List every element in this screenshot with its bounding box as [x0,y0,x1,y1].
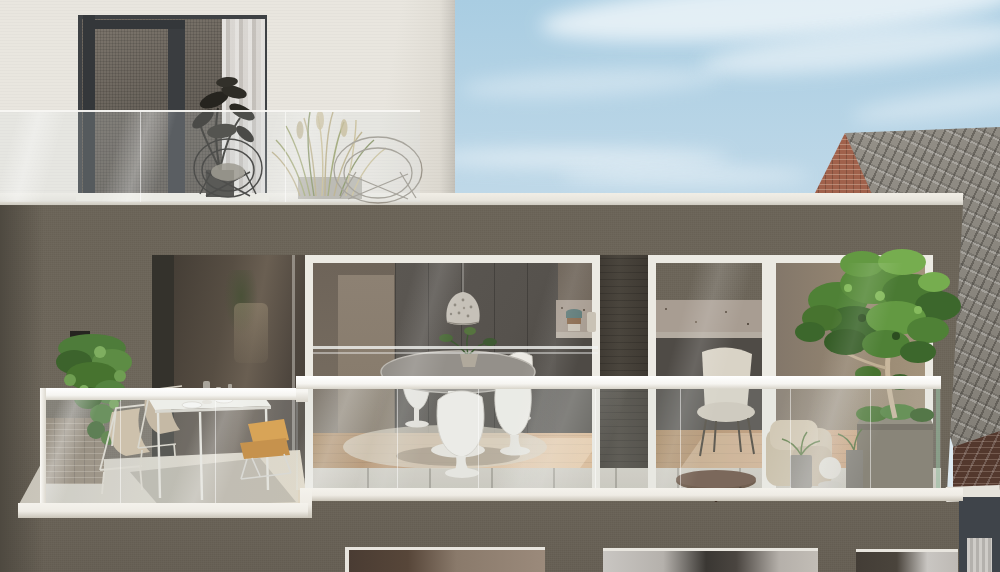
glass-edge-green [936,378,940,490]
handrail-main [296,376,941,389]
architectural-render: Photorealistic exterior rendering of a c… [0,0,1000,572]
upper-balcony-glass [0,110,420,202]
terrace-fascia-main [300,488,963,501]
glass-joint [790,389,791,490]
glass-joint [140,112,141,202]
balustrade-glass-left [42,398,298,507]
glass-joint [595,389,596,490]
upper-window-frame [83,20,185,29]
glass-joint [397,389,398,490]
terrace-fascia-left [18,503,308,518]
glass-joint [120,398,121,507]
glass-joint [285,112,286,202]
cloud [560,168,810,184]
glass-joint [478,389,479,490]
balustrade-glass-main [296,389,941,490]
balustrade-post [40,388,46,507]
lower-window [603,548,818,572]
glass-joint [215,398,216,507]
neighbor-corner-window [967,538,992,572]
window-frame [305,255,600,263]
window-frame [648,255,933,263]
upper-wall-shadow [440,0,455,200]
inner-glass-top-line [313,352,598,354]
glass-joint [870,389,871,490]
lower-window [345,547,545,572]
lower-window [856,549,958,572]
glass-joint [680,389,681,490]
handrail-left-terrace [40,388,302,400]
cloud [430,148,730,168]
glass-reflection-chair [234,303,268,363]
inner-glass-top-line [313,346,598,349]
